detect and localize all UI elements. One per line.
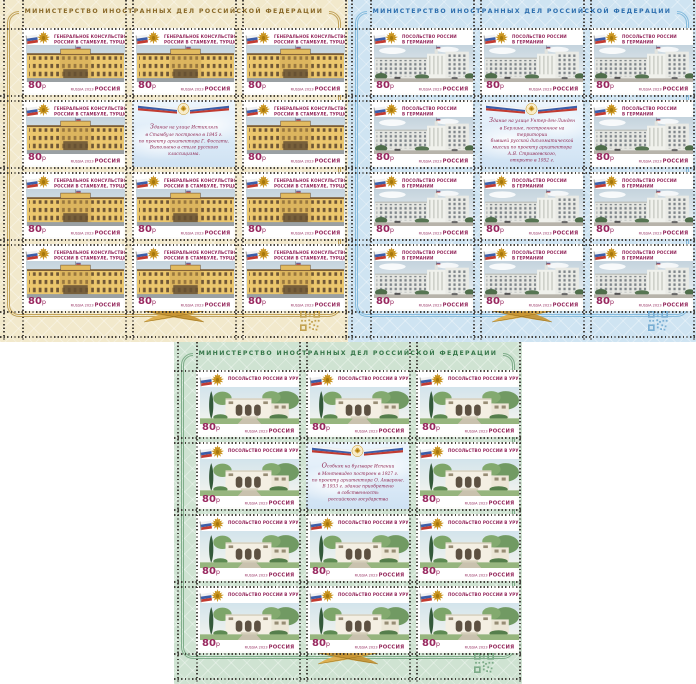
label-text-line: в Монтевидео построен в 1927 г.	[310, 471, 405, 477]
stamp-design: ПОСОЛЬСТВО РОССИИ В УРУГВАЕ 80р RUSSIA 2…	[418, 588, 517, 651]
perforation-line	[174, 586, 522, 588]
denomination-currency: р	[390, 298, 394, 306]
issue-year-label: RUSSIA 2023	[70, 160, 93, 164]
denomination-currency: р	[216, 496, 220, 504]
stamp-design: ГЕНЕРАЛЬНОЕ КОНСУЛЬСТВО РОССИИ В СТАМБУЛ…	[134, 30, 233, 93]
denomination-value: 80	[376, 224, 390, 235]
stamp-imprint: RUSSIA 2023 РОССИЯ	[234, 498, 294, 506]
denomination-value: 80	[596, 296, 610, 307]
denomination-currency: р	[436, 496, 440, 504]
country-name-label: РОССИЯ	[94, 158, 120, 164]
perforation-line	[583, 0, 585, 342]
building-illustration	[246, 117, 345, 154]
perforation-line	[345, 0, 347, 342]
stamp-imprint: RUSSIA 2023 РОССИЯ	[280, 228, 340, 236]
issue-year-label: RUSSIA 2023	[354, 574, 377, 578]
denomination-currency: р	[436, 424, 440, 432]
stamp-title-line-2: В ГЕРМАНИИ	[622, 39, 693, 44]
label-text-line: по проекту архитектора О. Аквароне.	[310, 477, 405, 483]
denomination-value: 80	[596, 152, 610, 163]
stamp-denomination: 80р	[596, 81, 614, 91]
perforation-line	[174, 370, 522, 372]
denomination-value: 80	[28, 80, 42, 91]
stamp-title-line-1: ПОСОЛЬСТВО РОССИИ	[512, 178, 583, 183]
denomination-value: 80	[312, 422, 326, 433]
label-text-line: Здание на улице Унтер-ден-Линден	[484, 116, 579, 125]
stamp-title-line-1: ГЕНЕРАЛЬНОЕ КОНСУЛЬСТВО	[54, 34, 125, 39]
stamp-design: ПОСОЛЬСТВО РОССИИ В ГЕРМАНИИ 80р RUSSIA …	[372, 30, 471, 93]
stamp-title-line-1: ПОСОЛЬСТВО РОССИИ В УРУГВАЕ	[448, 448, 519, 453]
postage-stamp: ГЕНЕРАЛЬНОЕ КОНСУЛЬСТВО РОССИИ В СТАМБУЛ…	[242, 172, 345, 239]
issue-year-label: RUSSIA 2023	[464, 646, 487, 650]
stamp-title-line-2: РОССИИ В СТАМБУЛЕ, ТУРЦИЯ	[274, 111, 345, 116]
stamp-title-line-2: В ГЕРМАНИИ	[622, 183, 693, 188]
perforation-line	[348, 239, 696, 241]
building-illustration	[310, 387, 409, 424]
perforation-line	[3, 0, 5, 342]
stamp-imprint: RUSSIA 2023 РОССИЯ	[628, 84, 688, 92]
building-illustration	[26, 261, 125, 298]
stamp-title-line-1: ПОСОЛЬСТВО РОССИИ В УРУГВАЕ	[448, 520, 519, 525]
issue-year-label: RUSSIA 2023	[290, 304, 313, 308]
coat-of-arms-icon	[384, 247, 399, 262]
stamp-design: ПОСОЛЬСТВО РОССИИ В ГЕРМАНИИ 80р RUSSIA …	[482, 246, 581, 309]
perforation-line	[0, 100, 348, 102]
building-illustration	[26, 117, 125, 154]
coat-of-arms-icon	[604, 103, 619, 118]
coat-of-arms-icon	[36, 247, 51, 262]
stamp-design: ПОСОЛЬСТВО РОССИИ В ГЕРМАНИИ 80р RUSSIA …	[592, 102, 691, 165]
building-illustration	[200, 459, 299, 496]
denomination-currency: р	[216, 640, 220, 648]
denomination-currency: р	[262, 298, 266, 306]
label-text-line: Особняк на бульваре Испании	[310, 461, 405, 470]
perforation-line	[348, 244, 696, 246]
stamp-design: ПОСОЛЬСТВО РОССИИ В ГЕРМАНИИ 80р RUSSIA …	[592, 174, 691, 237]
perforation-line	[351, 0, 353, 342]
building-illustration	[310, 603, 409, 640]
postage-stamp: ПОСОЛЬСТВО РОССИИ В УРУГВАЕ 80р RUSSIA 2…	[196, 514, 299, 581]
coat-of-arms-icon	[210, 517, 225, 532]
sheet-header-title: МИНИСТЕРСТВО ИНОСТРАННЫХ ДЕЛ РОССИЙСКОЙ …	[193, 350, 503, 357]
stamp-denomination: 80р	[248, 153, 266, 163]
stamp-design: ПОСОЛЬСТВО РОССИИ В УРУГВАЕ 80р RUSSIA 2…	[198, 444, 297, 507]
perforation-line	[348, 100, 696, 102]
stamp-title-line-1: ПОСОЛЬСТВО РОССИИ В УРУГВАЕ	[228, 520, 299, 525]
stamp-title-line-1: ПОСОЛЬСТВО РОССИИ	[622, 106, 693, 111]
stamp-title-line-2: В ГЕРМАНИИ	[512, 39, 583, 44]
denomination-currency: р	[326, 424, 330, 432]
country-name-label: РОССИЯ	[268, 572, 294, 578]
denomination-currency: р	[436, 640, 440, 648]
perforation-line	[0, 244, 348, 246]
stamp-denomination: 80р	[376, 153, 394, 163]
postage-stamp: ПОСОЛЬСТВО РОССИИ В ГЕРМАНИИ 80р RUSSIA …	[480, 172, 583, 239]
issue-year-label: RUSSIA 2023	[528, 304, 551, 308]
postage-stamp: ПОСОЛЬСТВО РОССИИ В ГЕРМАНИИ 80р RUSSIA …	[370, 28, 473, 95]
stamp-title-line-1: ПОСОЛЬСТВО РОССИИ В УРУГВАЕ	[338, 592, 409, 597]
stamp-title-line-1: ГЕНЕРАЛЬНОЕ КОНСУЛЬСТВО	[54, 106, 125, 111]
stamp-design: ПОСОЛЬСТВО РОССИИ В ГЕРМАНИИ 80р RUSSIA …	[592, 246, 691, 309]
stamp-title-line-2: РОССИИ В СТАМБУЛЕ, ТУРЦИЯ	[54, 39, 125, 44]
stamp-title-line-2: РОССИИ В СТАМБУЛЕ, ТУРЦИЯ	[54, 183, 125, 188]
stamp-design: ПОСОЛЬСТВО РОССИИ В УРУГВАЕ 80р RUSSIA 2…	[198, 372, 297, 435]
stamp-sheet-istanbul: МИНИСТЕРСТВО ИНОСТРАННЫХ ДЕЛ РОССИЙСКОЙ …	[0, 0, 348, 342]
perforation-line	[174, 509, 522, 511]
sheet-header: МИНИСТЕРСТВО ИНОСТРАННЫХ ДЕЛ РОССИЙСКОЙ …	[174, 345, 522, 361]
stamp-denomination: 80р	[202, 567, 220, 577]
stamp-sheet-germany: МИНИСТЕРСТВО ИНОСТРАННЫХ ДЕЛ РОССИЙСКОЙ …	[348, 0, 696, 342]
country-name-label: РОССИЯ	[442, 302, 468, 308]
denomination-value: 80	[486, 224, 500, 235]
issue-year-label: RUSSIA 2023	[464, 502, 487, 506]
coat-of-arms-icon	[146, 31, 161, 46]
country-name-label: РОССИЯ	[488, 644, 514, 650]
building-illustration	[420, 603, 519, 640]
country-name-label: РОССИЯ	[268, 644, 294, 650]
sheet-header: МИНИСТЕРСТВО ИНОСТРАННЫХ ДЕЛ РОССИЙСКОЙ …	[0, 3, 348, 19]
postage-stamp: ПОСОЛЬСТВО РОССИИ В УРУГВАЕ 80р RUSSIA 2…	[196, 586, 299, 653]
perforation-line	[480, 0, 482, 342]
denomination-currency: р	[152, 226, 156, 234]
country-name-label: РОССИЯ	[314, 86, 340, 92]
coat-of-arms-icon	[384, 175, 399, 190]
perforation-line	[299, 342, 301, 684]
denomination-currency: р	[42, 154, 46, 162]
stamp-imprint: RUSSIA 2023 РОССИЯ	[454, 498, 514, 506]
sheet-header-title: МИНИСТЕРСТВО ИНОСТРАННЫХ ДЕЛ РОССИЙСКОЙ …	[19, 8, 329, 15]
building-illustration	[310, 531, 409, 568]
denomination-value: 80	[312, 638, 326, 649]
stamp-design: ГЕНЕРАЛЬНОЕ КОНСУЛЬСТВО РОССИИ В СТАМБУЛ…	[24, 246, 123, 309]
issue-year-label: RUSSIA 2023	[244, 502, 267, 506]
denomination-currency: р	[42, 82, 46, 90]
country-name-label: РОССИЯ	[204, 302, 230, 308]
coat-of-arms-icon	[384, 31, 399, 46]
stamp-title-line-2: В ГЕРМАНИИ	[402, 183, 473, 188]
coat-of-arms-icon	[210, 445, 225, 460]
issue-year-label: RUSSIA 2023	[290, 88, 313, 92]
country-name-label: РОССИЯ	[94, 230, 120, 236]
issue-year-label: RUSSIA 2023	[180, 304, 203, 308]
denomination-currency: р	[262, 226, 266, 234]
postage-stamp: ПОСОЛЬСТВО РОССИИ В УРУГВАЕ 80р RUSSIA 2…	[416, 514, 519, 581]
stamp-title-line-1: ГЕНЕРАЛЬНОЕ КОНСУЛЬСТВО	[54, 250, 125, 255]
denomination-value: 80	[138, 80, 152, 91]
stamp-denomination: 80р	[138, 81, 156, 91]
center-coupon: Здание на улице Унтер-ден-Линденв Берлин…	[480, 100, 583, 167]
denomination-value: 80	[138, 224, 152, 235]
issue-year-label: RUSSIA 2023	[418, 232, 441, 236]
stamp-imprint: RUSSIA 2023 РОССИЯ	[60, 228, 120, 236]
denomination-currency: р	[610, 154, 614, 162]
country-name-label: РОССИЯ	[268, 428, 294, 434]
denomination-currency: р	[326, 568, 330, 576]
stamp-imprint: RUSSIA 2023 РОССИЯ	[454, 426, 514, 434]
denomination-value: 80	[248, 152, 262, 163]
stamp-design: ГЕНЕРАЛЬНОЕ КОНСУЛЬСТВО РОССИИ В СТАМБУЛ…	[24, 102, 123, 165]
stamp-imprint: RUSSIA 2023 РОССИЯ	[60, 156, 120, 164]
stamp-design: ГЕНЕРАЛЬНОЕ КОНСУЛЬСТВО РОССИИ В СТАМБУЛ…	[244, 102, 343, 165]
country-name-label: РОССИЯ	[552, 230, 578, 236]
stamp-design: ГЕНЕРАЛЬНОЕ КОНСУЛЬСТВО РОССИИ В СТАМБУЛ…	[244, 30, 343, 93]
perforation-line	[235, 0, 237, 342]
stamp-denomination: 80р	[138, 225, 156, 235]
qr-code	[648, 311, 668, 335]
label-text-line: в собственность	[310, 490, 405, 496]
coat-of-arms-icon	[256, 175, 271, 190]
stamp-denomination: 80р	[422, 423, 440, 433]
stamp-denomination: 80р	[312, 567, 330, 577]
stamp-title-line-2: В ГЕРМАНИИ	[512, 255, 583, 260]
issue-year-label: RUSSIA 2023	[638, 88, 661, 92]
stamp-denomination: 80р	[202, 639, 220, 649]
country-name-label: РОССИЯ	[268, 500, 294, 506]
perforation-line	[519, 342, 521, 684]
coupon-text-block: Особняк на бульваре Испаниив Монтевидео …	[310, 458, 405, 506]
perforation-line	[174, 442, 522, 444]
building-illustration	[594, 261, 693, 298]
country-name-label: РОССИЯ	[442, 86, 468, 92]
label-text-line: в Стамбуле построено в 1845 г.	[136, 132, 231, 138]
stamp-title-line-1: ПОСОЛЬСТВО РОССИИ	[402, 250, 473, 255]
perforation-line	[174, 437, 522, 439]
stamp-denomination: 80р	[28, 153, 46, 163]
coat-of-arms-icon	[210, 373, 225, 388]
stamp-design: ПОСОЛЬСТВО РОССИИ В ГЕРМАНИИ 80р RUSSIA …	[372, 102, 471, 165]
issue-year-label: RUSSIA 2023	[418, 88, 441, 92]
label-text-line: открыто в 1952 г.	[484, 157, 579, 163]
coat-of-arms-icon	[146, 247, 161, 262]
stamp-denomination: 80р	[248, 81, 266, 91]
stamp-title-line-2: В ГЕРМАНИИ	[402, 39, 473, 44]
stamp-denomination: 80р	[376, 297, 394, 307]
postage-stamp: ГЕНЕРАЛЬНОЕ КОНСУЛЬСТВО РОССИИ В СТАМБУЛ…	[22, 100, 125, 167]
denomination-value: 80	[486, 80, 500, 91]
issue-year-label: RUSSIA 2023	[244, 574, 267, 578]
country-name-label: РОССИЯ	[442, 158, 468, 164]
stamp-denomination: 80р	[138, 297, 156, 307]
country-name-label: РОССИЯ	[204, 86, 230, 92]
stamp-imprint: RUSSIA 2023 РОССИЯ	[170, 228, 230, 236]
stamp-imprint: RUSSIA 2023 РОССИЯ	[408, 84, 468, 92]
issue-year-label: RUSSIA 2023	[354, 646, 377, 650]
stamp-imprint: RUSSIA 2023 РОССИЯ	[344, 642, 404, 650]
coat-of-arms-icon	[384, 103, 399, 118]
denomination-value: 80	[28, 224, 42, 235]
perforation-line	[0, 95, 348, 97]
stamp-title-line-1: ПОСОЛЬСТВО РОССИИ	[622, 250, 693, 255]
country-name-label: РОССИЯ	[662, 230, 688, 236]
postage-stamp: ПОСОЛЬСТВО РОССИИ В УРУГВАЕ 80р RUSSIA 2…	[306, 514, 409, 581]
stamp-title-line-1: ПОСОЛЬСТВО РОССИИ	[622, 178, 693, 183]
perforation-line	[0, 311, 348, 313]
postage-stamp: ПОСОЛЬСТВО РОССИИ В ГЕРМАНИИ 80р RUSSIA …	[370, 100, 473, 167]
stamp-title-line-2: В ГЕРМАНИИ	[622, 111, 693, 116]
stamp-denomination: 80р	[486, 225, 504, 235]
stamp-title-line-2: РОССИИ В СТАМБУЛЕ, ТУРЦИЯ	[54, 111, 125, 116]
building-illustration	[374, 117, 473, 154]
postage-stamp: ГЕНЕРАЛЬНОЕ КОНСУЛЬСТВО РОССИИ В СТАМБУЛ…	[22, 28, 125, 95]
postage-stamp: ГЕНЕРАЛЬНОЕ КОНСУЛЬСТВО РОССИИ В СТАМБУЛ…	[22, 172, 125, 239]
issue-year-label: RUSSIA 2023	[464, 430, 487, 434]
perforation-line	[348, 28, 696, 30]
denomination-value: 80	[312, 566, 326, 577]
country-name-label: РОССИЯ	[488, 572, 514, 578]
stamp-title-line-1: ПОСОЛЬСТВО РОССИИ	[512, 250, 583, 255]
building-illustration	[136, 189, 235, 226]
coat-of-arms-icon	[146, 175, 161, 190]
stamp-imprint: RUSSIA 2023 РОССИЯ	[518, 228, 578, 236]
label-text-line: российского государства	[310, 496, 405, 502]
postage-stamp: ПОСОЛЬСТВО РОССИИ В ГЕРМАНИИ 80р RUSSIA …	[590, 100, 693, 167]
coat-of-arms-icon	[320, 517, 335, 532]
denomination-value: 80	[28, 152, 42, 163]
stamp-title-line-1: ГЕНЕРАЛЬНОЕ КОНСУЛЬСТВО	[164, 178, 235, 183]
perforation-line	[174, 514, 522, 516]
building-illustration	[374, 45, 473, 82]
coat-of-arms-icon	[36, 175, 51, 190]
stamp-design: ГЕНЕРАЛЬНОЕ КОНСУЛЬСТВО РОССИИ В СТАМБУЛ…	[244, 246, 343, 309]
perforation-line	[22, 0, 24, 342]
stamp-title-line-2: РОССИИ В СТАМБУЛЕ, ТУРЦИЯ	[274, 183, 345, 188]
country-name-label: РОССИЯ	[442, 230, 468, 236]
denomination-value: 80	[422, 566, 436, 577]
qr-code	[474, 653, 494, 677]
stamp-imprint: RUSSIA 2023 РОССИЯ	[234, 642, 294, 650]
denomination-value: 80	[28, 296, 42, 307]
stamp-denomination: 80р	[596, 225, 614, 235]
stamp-design: ПОСОЛЬСТВО РОССИИ В УРУГВАЕ 80р RUSSIA 2…	[308, 372, 407, 435]
coat-of-arms-icon	[430, 445, 445, 460]
stamp-denomination: 80р	[422, 639, 440, 649]
issue-year-label: RUSSIA 2023	[70, 232, 93, 236]
stamp-denomination: 80р	[312, 639, 330, 649]
postage-stamp: ПОСОЛЬСТВО РОССИИ В УРУГВАЕ 80р RUSSIA 2…	[306, 586, 409, 653]
issue-year-label: RUSSIA 2023	[638, 232, 661, 236]
country-name-label: РОССИЯ	[94, 86, 120, 92]
coat-of-arms-icon	[320, 373, 335, 388]
stamp-title-line-1: ПОСОЛЬСТВО РОССИИ В УРУГВАЕ	[228, 448, 299, 453]
postage-stamp: ПОСОЛЬСТВО РОССИИ В ГЕРМАНИИ 80р RUSSIA …	[480, 244, 583, 311]
stamp-title-line-2: РОССИИ В СТАМБУЛЕ, ТУРЦИЯ	[274, 255, 345, 260]
coat-of-arms-icon	[494, 247, 509, 262]
perforation-line	[348, 336, 696, 338]
stamp-imprint: RUSSIA 2023 РОССИЯ	[234, 426, 294, 434]
stamp-imprint: RUSSIA 2023 РОССИЯ	[518, 84, 578, 92]
building-illustration	[484, 45, 583, 82]
country-name-label: РОССИЯ	[488, 500, 514, 506]
building-illustration	[246, 45, 345, 82]
denomination-value: 80	[138, 296, 152, 307]
denomination-value: 80	[422, 638, 436, 649]
country-name-label: РОССИЯ	[662, 302, 688, 308]
stamp-design: ГЕНЕРАЛЬНОЕ КОНСУЛЬСТВО РОССИИ В СТАМБУЛ…	[24, 174, 123, 237]
country-name-label: РОССИЯ	[378, 428, 404, 434]
denomination-value: 80	[248, 296, 262, 307]
coat-of-arms-icon	[210, 589, 225, 604]
postage-stamp: ГЕНЕРАЛЬНОЕ КОНСУЛЬСТВО РОССИИ В СТАМБУЛ…	[242, 28, 345, 95]
stamp-imprint: RUSSIA 2023 РОССИЯ	[60, 300, 120, 308]
stamp-title-line-1: ПОСОЛЬСТВО РОССИИ В УРУГВАЕ	[228, 592, 299, 597]
issue-year-label: RUSSIA 2023	[290, 160, 313, 164]
stamp-title-line-2: В ГЕРМАНИИ	[402, 255, 473, 260]
denomination-value: 80	[202, 422, 216, 433]
building-illustration	[594, 45, 693, 82]
stamp-denomination: 80р	[28, 81, 46, 91]
denomination-currency: р	[390, 82, 394, 90]
denomination-value: 80	[202, 566, 216, 577]
coupon-text-block: Здание на улице Унтер-ден-Линденв Берлин…	[484, 116, 579, 164]
building-illustration	[136, 45, 235, 82]
stamp-title-line-2: РОССИИ В СТАМБУЛЕ, ТУРЦИЯ	[54, 255, 125, 260]
stamp-imprint: RUSSIA 2023 РОССИЯ	[234, 570, 294, 578]
coupon-text-block: Здание на улице Истикляльв Стамбуле пост…	[136, 116, 231, 164]
denomination-currency: р	[390, 154, 394, 162]
coat-of-arms-icon	[36, 103, 51, 118]
country-name-label: РОССИЯ	[314, 230, 340, 236]
stamp-design: ПОСОЛЬСТВО РОССИИ В УРУГВАЕ 80р RUSSIA 2…	[308, 588, 407, 651]
building-illustration	[420, 459, 519, 496]
denomination-value: 80	[202, 638, 216, 649]
coat-of-arms-icon	[494, 31, 509, 46]
denomination-currency: р	[610, 298, 614, 306]
building-illustration	[484, 189, 583, 226]
stamp-imprint: RUSSIA 2023 РОССИЯ	[628, 156, 688, 164]
postage-stamp: ГЕНЕРАЛЬНОЕ КОНСУЛЬСТВО РОССИИ В СТАМБУЛ…	[22, 244, 125, 311]
denomination-currency: р	[500, 226, 504, 234]
perforation-line	[174, 581, 522, 583]
qr-code	[300, 311, 320, 335]
perforation-line	[132, 0, 134, 342]
perforation-line	[409, 342, 411, 684]
stamp-design: ПОСОЛЬСТВО РОССИИ В ГЕРМАНИИ 80р RUSSIA …	[482, 30, 581, 93]
center-coupon: Здание на улице Истикляльв Стамбуле пост…	[132, 100, 235, 167]
postage-stamp: ПОСОЛЬСТВО РОССИИ В УРУГВАЕ 80р RUSSIA 2…	[196, 442, 299, 509]
label-text: Особняк на бульваре Испаниив Монтевидео …	[310, 461, 405, 502]
denomination-currency: р	[436, 568, 440, 576]
postage-stamp: ПОСОЛЬСТВО РОССИИ В УРУГВАЕ 80р RUSSIA 2…	[416, 370, 519, 437]
flags-garland-icon	[308, 444, 407, 458]
sheet-header: МИНИСТЕРСТВО ИНОСТРАННЫХ ДЕЛ РОССИЙСКОЙ …	[348, 3, 696, 19]
postage-stamp: ПОСОЛЬСТВО РОССИИ В ГЕРМАНИИ 80р RUSSIA …	[370, 172, 473, 239]
postage-stamp: ПОСОЛЬСТВО РОССИИ В ГЕРМАНИИ 80р RUSSIA …	[590, 28, 693, 95]
perforation-line	[0, 167, 348, 169]
postage-stamp: ПОСОЛЬСТВО РОССИИ В ГЕРМАНИИ 80р RUSSIA …	[370, 244, 473, 311]
issue-year-label: RUSSIA 2023	[180, 232, 203, 236]
perforation-line	[306, 342, 308, 684]
building-illustration	[420, 531, 519, 568]
label-text-line: в Берлине, построенное на территории	[484, 126, 579, 139]
denomination-currency: р	[500, 298, 504, 306]
label-text: Здание на улице Унтер-ден-Линденв Берлин…	[484, 116, 579, 164]
denomination-currency: р	[152, 82, 156, 90]
building-illustration	[26, 45, 125, 82]
denomination-currency: р	[390, 226, 394, 234]
denomination-currency: р	[262, 154, 266, 162]
postage-stamp: ГЕНЕРАЛЬНОЕ КОНСУЛЬСТВО РОССИИ В СТАМБУЛ…	[132, 28, 235, 95]
coat-of-arms-icon	[430, 589, 445, 604]
postage-stamp: ГЕНЕРАЛЬНОЕ КОНСУЛЬСТВО РОССИИ В СТАМБУЛ…	[132, 244, 235, 311]
postage-stamp: ПОСОЛЬСТВО РОССИИ В УРУГВАЕ 80р RUSSIA 2…	[196, 370, 299, 437]
building-illustration	[136, 261, 235, 298]
stamp-title-line-2: РОССИИ В СТАМБУЛЕ, ТУРЦИЯ	[274, 39, 345, 44]
country-name-label: РОССИЯ	[314, 302, 340, 308]
stamp-imprint: RUSSIA 2023 РОССИЯ	[280, 156, 340, 164]
stamp-design: ПОСОЛЬСТВО РОССИИ В ГЕРМАНИИ 80р RUSSIA …	[592, 30, 691, 93]
building-illustration	[374, 261, 473, 298]
country-name-label: РОССИЯ	[204, 230, 230, 236]
